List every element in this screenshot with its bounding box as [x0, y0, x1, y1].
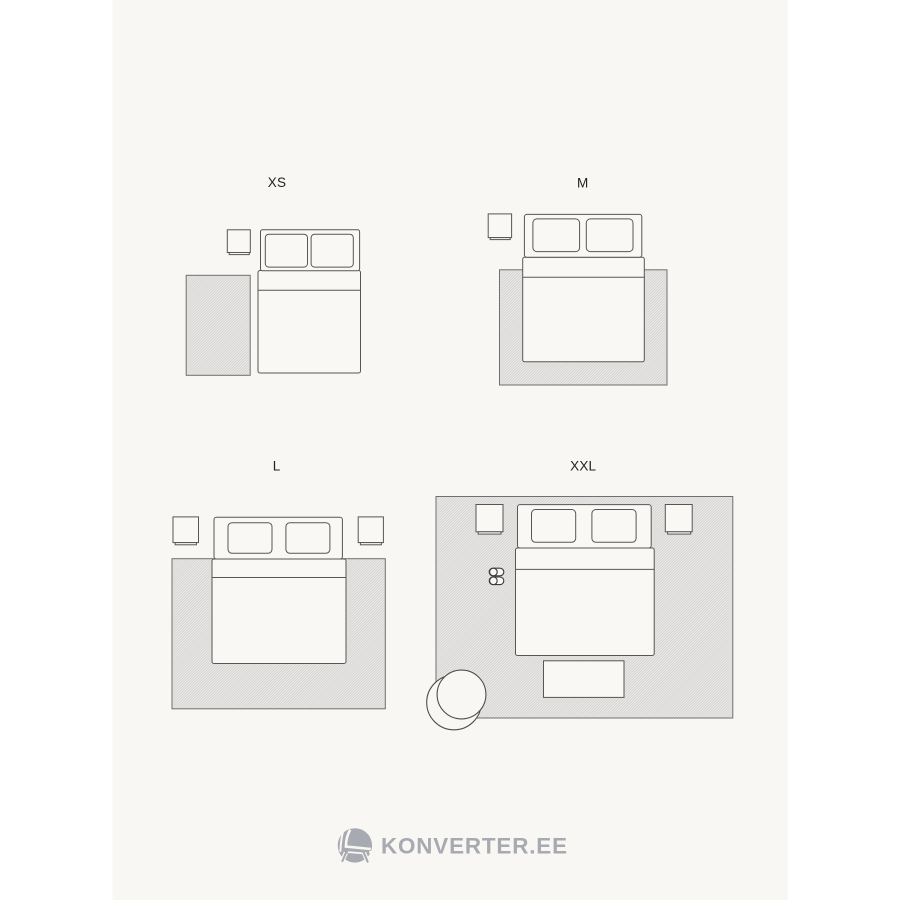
svg-text:XS: XS [268, 175, 286, 190]
svg-text:KONVERTER.EE: KONVERTER.EE [381, 833, 568, 858]
svg-text:M: M [577, 176, 588, 191]
svg-text:XXL: XXL [570, 459, 596, 474]
svg-text:L: L [273, 459, 281, 474]
